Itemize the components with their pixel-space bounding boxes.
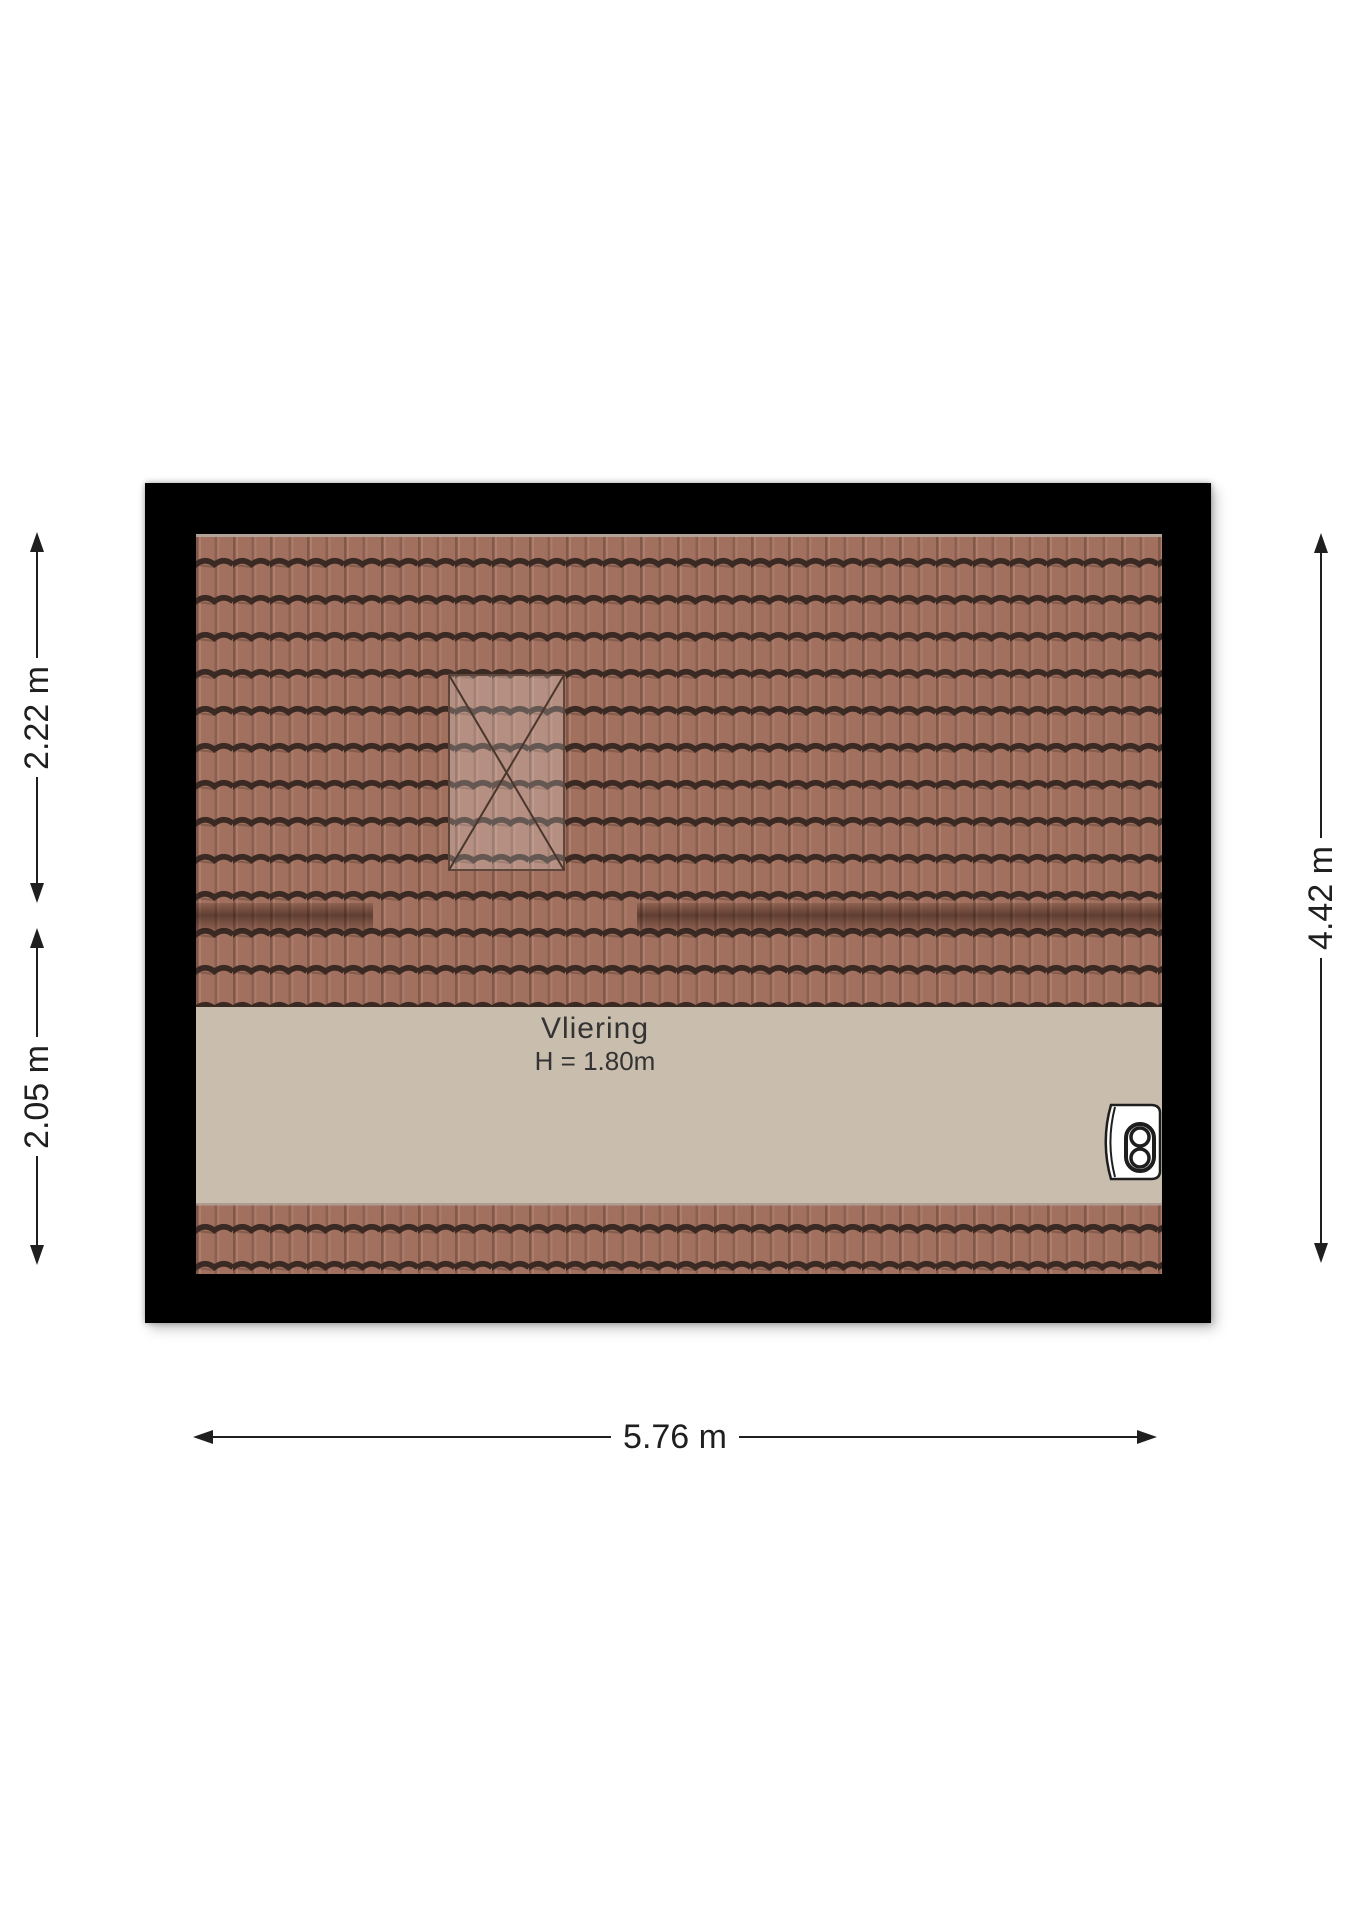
skylight-window-icon (449, 675, 564, 870)
attic-floor (196, 1007, 1162, 1203)
roof-upper (196, 534, 1162, 1007)
dimension-label: 2.22 m (20, 666, 54, 770)
dimension-label: 2.05 m (20, 1045, 54, 1149)
dimension-bottom: 5.76 m (193, 1415, 1157, 1459)
plan-interior: Vliering H = 1.80m (196, 534, 1162, 1274)
purlin-band-left (196, 903, 373, 930)
room-label-block: Vliering H = 1.80m (535, 1012, 656, 1076)
dimension-label: 4.42 m (1304, 846, 1338, 950)
floorplan-page: Vliering H = 1.80m 2.22 m 2.05 m (0, 0, 1358, 1920)
arrow-up-icon (30, 532, 44, 552)
roof-ridge-edge (196, 534, 1162, 537)
dimension-line (36, 552, 38, 658)
arrow-right-icon (1137, 1430, 1157, 1444)
dimension-line (739, 1436, 1137, 1438)
arrow-left-icon (193, 1430, 213, 1444)
arrow-up-icon (1314, 533, 1328, 553)
room-name: Vliering (535, 1012, 656, 1046)
arrow-down-icon (30, 883, 44, 903)
roof-lower (196, 1203, 1162, 1274)
purlin-band-right (637, 903, 1162, 930)
dimension-line (36, 948, 38, 1037)
dimension-right: 4.42 m (1299, 533, 1343, 1263)
dimension-left-upper: 2.22 m (15, 532, 59, 903)
dimension-label: 5.76 m (623, 1420, 727, 1454)
dimension-line (36, 777, 38, 883)
dimension-line (1320, 553, 1322, 838)
plan-frame-walls: Vliering H = 1.80m (145, 483, 1211, 1323)
arrow-down-icon (1314, 1243, 1328, 1263)
roof-lower-edge (196, 1203, 1162, 1206)
arrow-up-icon (30, 928, 44, 948)
dimension-line (1320, 958, 1322, 1243)
dimension-line (213, 1436, 611, 1438)
room-height-note: H = 1.80m (535, 1046, 656, 1076)
arrow-down-icon (30, 1245, 44, 1265)
boiler-icon (1095, 1102, 1163, 1182)
dimension-line (36, 1156, 38, 1245)
plan-drawing (196, 534, 1162, 1274)
dimension-left-lower: 2.05 m (15, 928, 59, 1265)
